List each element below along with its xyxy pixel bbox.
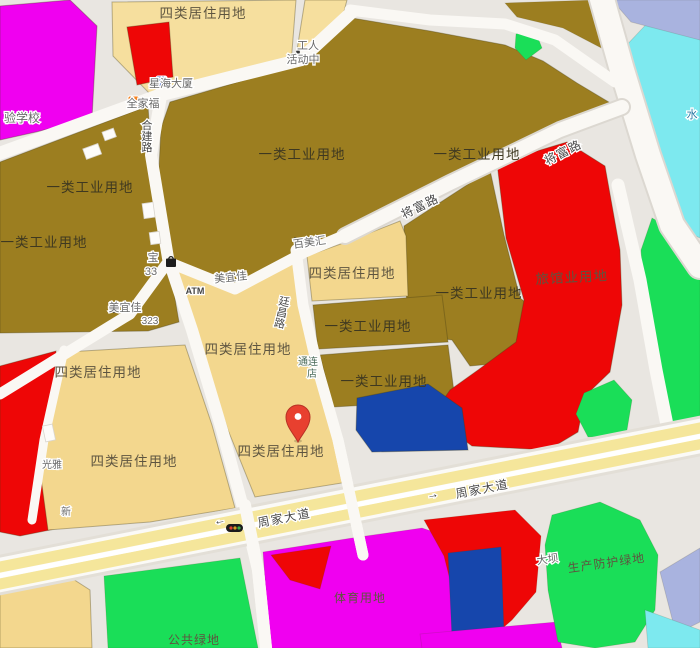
zone-label-industrial1: 一类工业用地	[434, 147, 521, 162]
building-footprint	[142, 202, 155, 218]
poi-worker-center-line1[interactable]: 工人	[297, 39, 319, 52]
traffic-light-icon	[226, 524, 243, 532]
poi-atm-label[interactable]: ATM	[186, 286, 205, 296]
poi-quanjiafu-label[interactable]: 全家福	[127, 96, 160, 110]
poi-meiyijia-label[interactable]: 美宜佳	[109, 300, 142, 314]
road-label-hejian: 合建路	[140, 118, 153, 153]
poi-bao-label[interactable]: 宝	[148, 250, 159, 264]
zone-label-industrial1: 一类工业用地	[341, 374, 428, 389]
road-arrow-west: ←	[212, 512, 228, 528]
map-viewport[interactable]: 四类居住用地 一类工业用地 一类工业用地 一类工业用地 一类工业用地 一类工业用…	[0, 0, 700, 648]
poi-xin-label[interactable]: 新	[61, 505, 71, 518]
poi-worker-center-line2[interactable]: 活动中	[287, 53, 320, 66]
road-arrow-east: →	[425, 486, 441, 502]
zone-label-residential4: 四类居住用地	[55, 365, 142, 380]
zone-label-industrial1: 一类工业用地	[436, 286, 523, 301]
poi-xinghai-tower-label[interactable]: 星海大厦	[149, 76, 193, 90]
poi-tonglian-line2[interactable]: 店	[307, 367, 317, 380]
zone-label-industrial1: 一类工业用地	[325, 319, 412, 334]
zone-label-industrial1: 一类工业用地	[259, 147, 346, 162]
zone-label-residential4: 四类居住用地	[238, 444, 325, 459]
zone-label-residential4: 四类居住用地	[160, 6, 247, 21]
water-label: 水	[687, 108, 698, 121]
zone-label-residential4: 四类居住用地	[91, 454, 178, 469]
poi-school-label[interactable]: 验学校	[4, 110, 40, 125]
zone-label-industrial1: 一类工业用地	[1, 235, 88, 250]
poi-323-label[interactable]: 323	[142, 316, 159, 327]
zone-label-residential4: 四类居住用地	[205, 342, 292, 357]
zone-label-sports: 体育用地	[334, 590, 386, 605]
poi-33-label[interactable]: 33	[145, 266, 157, 278]
poi-tonglian-line1[interactable]: 通连	[298, 355, 318, 368]
zone-blue-bottom	[448, 547, 504, 638]
map-canvas[interactable]: 四类居住用地 一类工业用地 一类工业用地 一类工业用地 一类工业用地 一类工业用…	[0, 0, 700, 648]
zone-label-public-green: 公共绿地	[168, 632, 220, 647]
building-footprint	[149, 231, 161, 244]
zone-label-industrial1: 一类工业用地	[47, 180, 134, 195]
zone-label-residential4: 四类居住用地	[309, 266, 396, 281]
zone-protective-green	[545, 502, 658, 648]
poi-guangya-label[interactable]: 光雅	[42, 458, 62, 471]
